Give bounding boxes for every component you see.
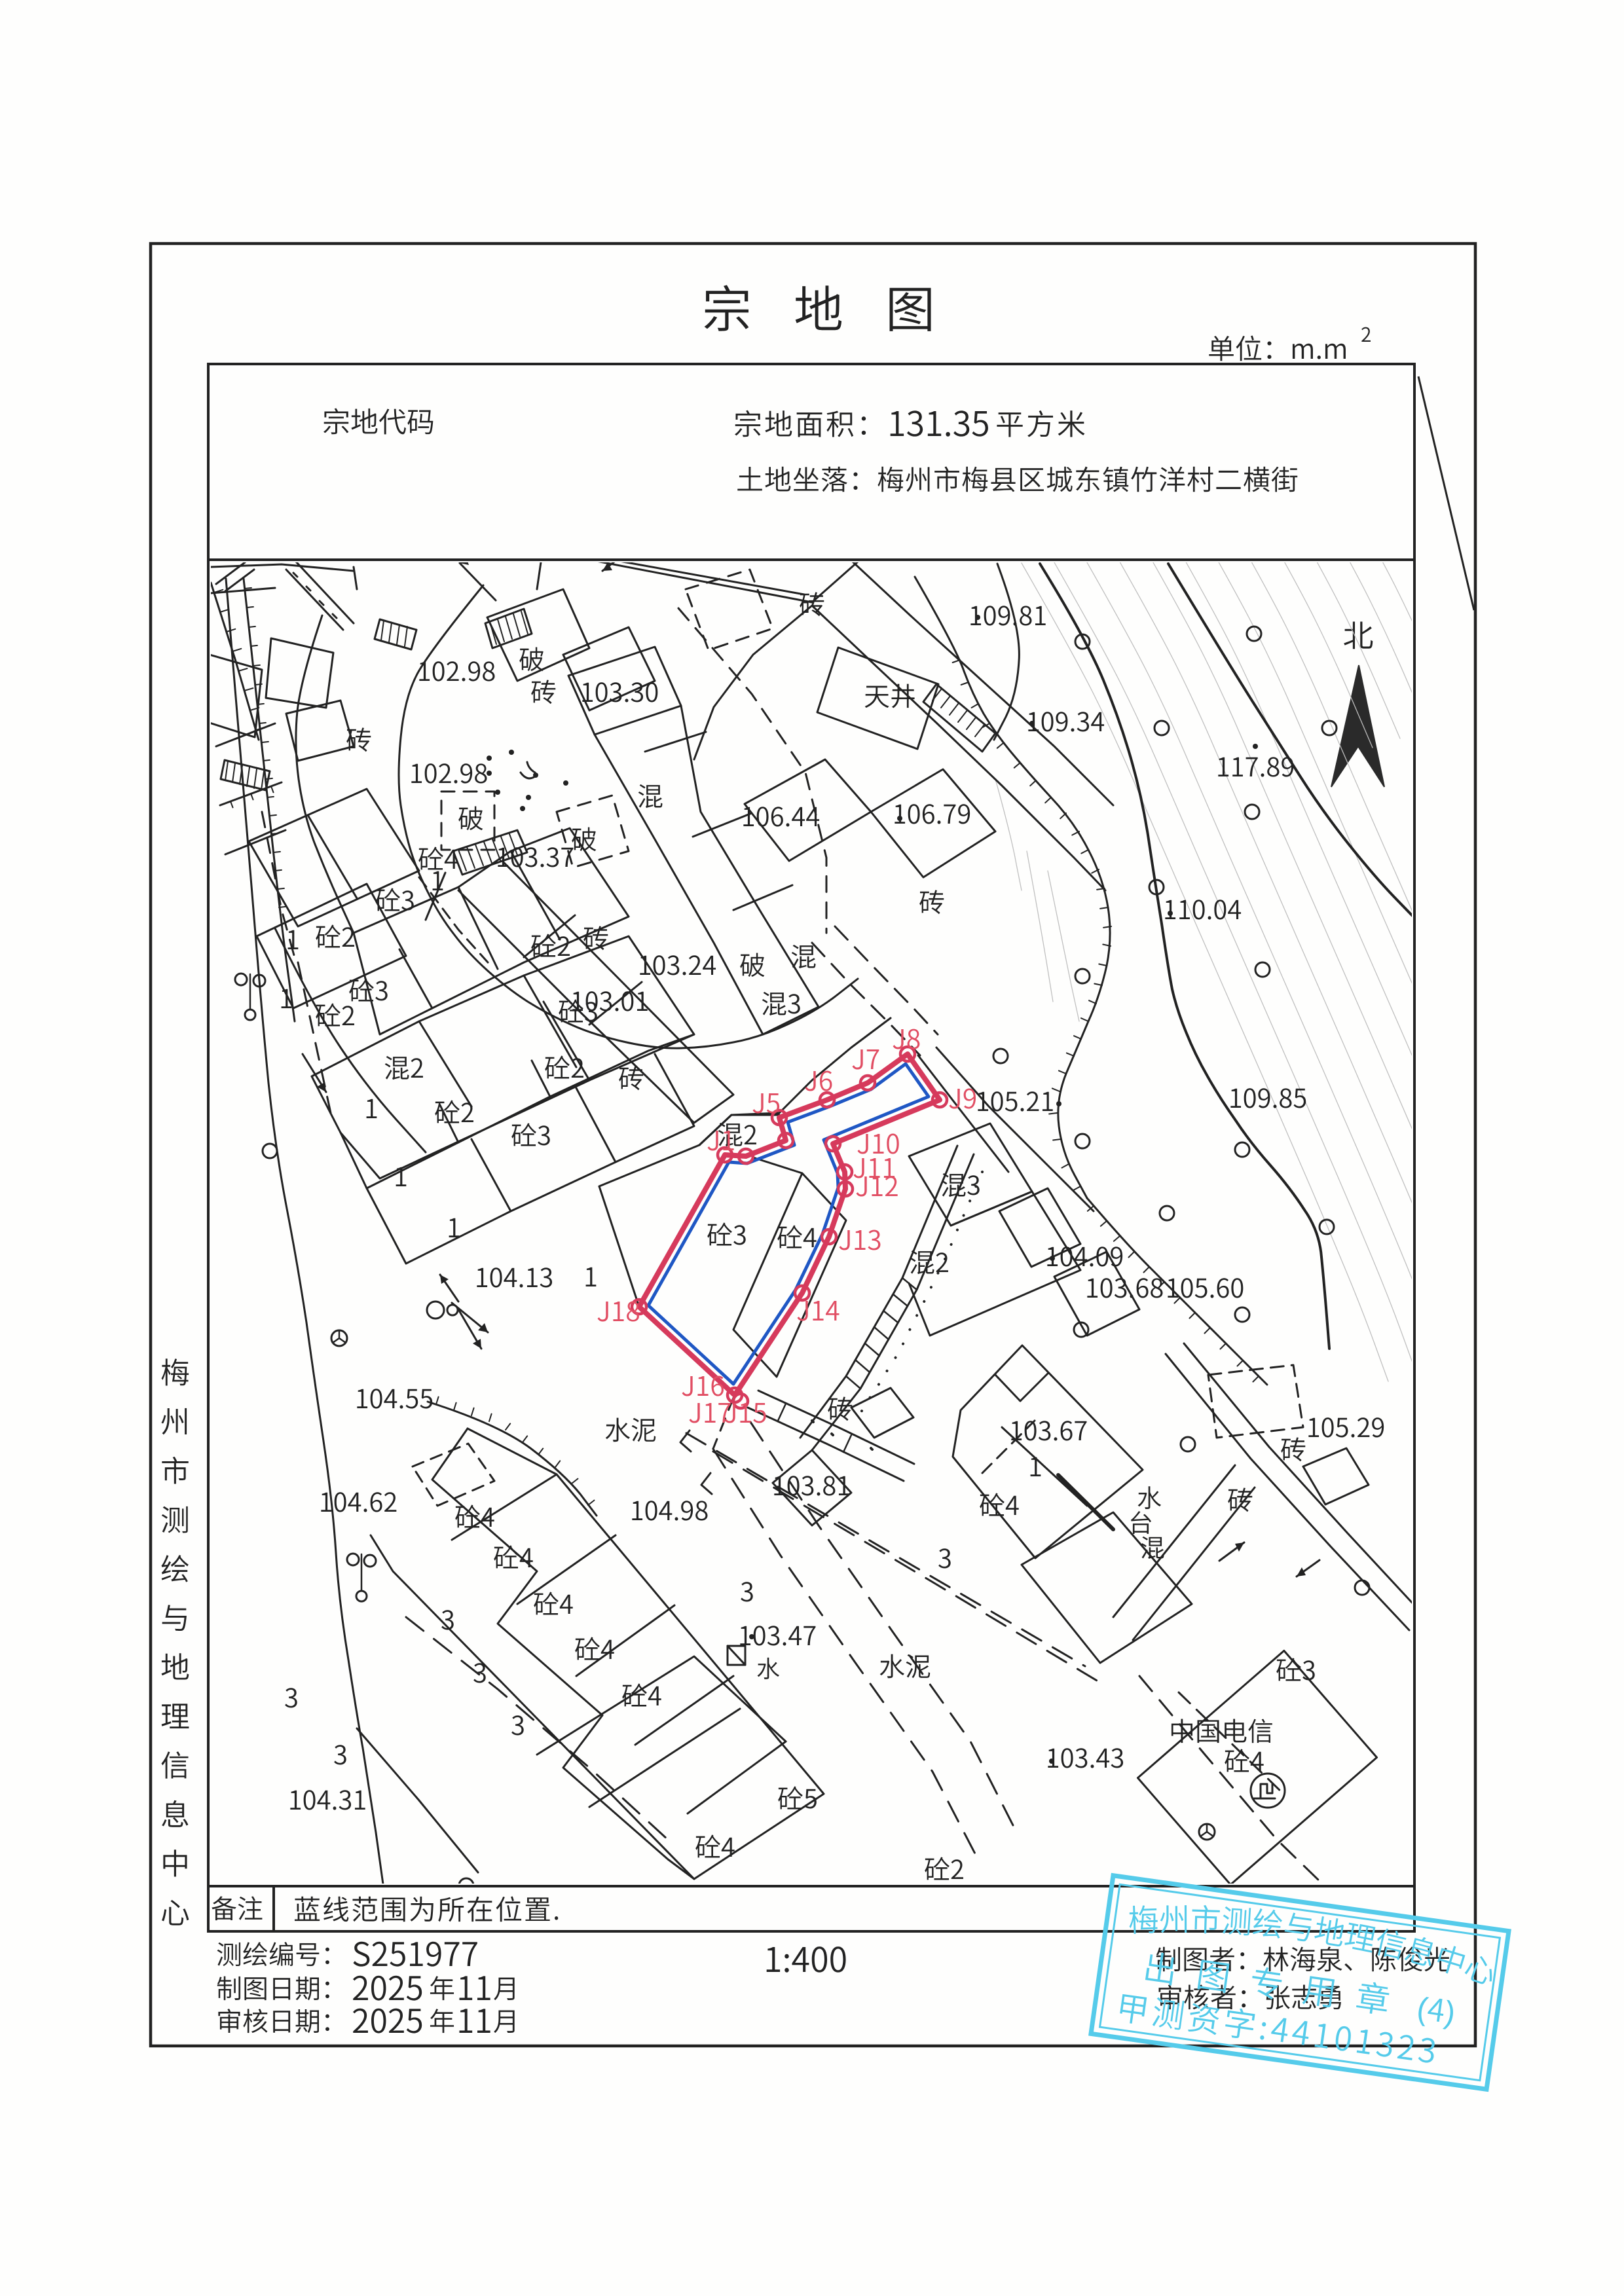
svg-text:砼4: 砼4 [777,1217,817,1255]
svg-text:105.21: 105.21 [976,1081,1055,1119]
svg-text:109.85: 109.85 [1228,1078,1308,1116]
svg-text:砖: 砖 [618,1058,644,1096]
svg-text:1:400: 1:400 [764,1933,847,1982]
svg-text:砖: 砖 [1280,1429,1306,1467]
svg-text:J1: J1 [707,1119,735,1158]
svg-text:103.68: 103.68 [1085,1267,1164,1305]
svg-text:砼3: 砼3 [558,991,599,1029]
svg-text:混2: 混2 [909,1242,950,1280]
svg-text:土地坐落：梅州市梅县区城东镇竹洋村二横街: 土地坐落：梅州市梅县区城东镇竹洋村二横街 [736,458,1299,498]
svg-text:砼2: 砼2 [315,995,356,1033]
svg-text:106.44: 106.44 [741,796,821,834]
svg-text:1: 1 [279,978,293,1016]
svg-text:105.60: 105.60 [1166,1267,1245,1305]
svg-text:1: 1 [1028,1446,1043,1484]
svg-text:102.98: 102.98 [417,651,496,689]
svg-text:砖: 砖 [530,672,557,710]
svg-text:混: 混 [790,936,817,974]
svg-text:102.98: 102.98 [409,753,489,791]
svg-text:砼2: 砼2 [544,1048,585,1085]
svg-text:103.37: 103.37 [496,837,575,875]
svg-text:3: 3 [740,1571,754,1609]
svg-text:砼4: 砼4 [1224,1741,1264,1779]
svg-text:砼4: 砼4 [574,1629,615,1667]
svg-text:J14: J14 [796,1289,840,1328]
svg-text:蓝线范围为所在位置.: 蓝线范围为所在位置. [293,1888,561,1928]
svg-text:103.81: 103.81 [772,1465,851,1503]
svg-text:3: 3 [441,1599,455,1637]
svg-text:砖: 砖 [919,882,945,920]
svg-text:州: 州 [160,1398,190,1441]
svg-text:单位：m.m: 单位：m.m [1208,327,1348,367]
svg-text:2: 2 [1361,319,1371,348]
svg-text:2025: 2025 [352,1995,424,2043]
svg-text:砼2: 砼2 [530,926,571,964]
svg-text:地: 地 [160,1644,190,1686]
svg-text:109.81: 109.81 [969,595,1048,633]
svg-text:北: 北 [1343,611,1374,656]
svg-text:11: 11 [456,1995,492,2043]
svg-text:131.35: 131.35 [887,397,990,446]
svg-text:砖: 砖 [827,1389,853,1427]
svg-text:砼3: 砼3 [1276,1650,1316,1688]
svg-text:混2: 混2 [384,1048,424,1085]
svg-text:1: 1 [286,919,300,957]
svg-text:混3: 混3 [761,983,802,1021]
svg-text:103.47: 103.47 [738,1615,817,1653]
svg-text:110.04: 110.04 [1163,889,1242,927]
svg-text:3: 3 [938,1538,952,1576]
svg-text:绘: 绘 [160,1546,190,1588]
svg-text:3: 3 [284,1677,299,1715]
svg-text:3: 3 [511,1705,525,1743]
svg-text:水: 水 [756,1650,780,1685]
svg-text:混: 混 [1140,1528,1165,1564]
svg-text:平方米: 平方米 [995,401,1088,443]
svg-text:砼4: 砼4 [695,1827,735,1865]
svg-text:105.29: 105.29 [1306,1407,1386,1445]
svg-text:砼2: 砼2 [924,1849,965,1887]
svg-text:J8: J8 [892,1017,921,1057]
svg-text:水泥: 水泥 [879,1646,931,1684]
svg-text:宗地图: 宗地图 [702,270,977,342]
svg-text:J18: J18 [597,1290,640,1329]
svg-text:水泥: 水泥 [604,1410,657,1448]
svg-text:备注: 备注 [211,1888,263,1926]
svg-text:砼3: 砼3 [375,880,415,918]
svg-text:审核日期：: 审核日期： [216,2001,347,2039]
svg-text:1: 1 [447,1207,461,1245]
svg-text:砼5: 砼5 [777,1778,818,1816]
svg-text:砼4: 砼4 [621,1675,662,1713]
svg-text:砼3: 砼3 [511,1115,551,1153]
svg-text:104.13: 104.13 [475,1257,554,1295]
svg-text:104.55: 104.55 [355,1378,434,1416]
svg-text:砼4: 砼4 [979,1485,1020,1523]
svg-text:3: 3 [333,1734,348,1772]
svg-text:砼2: 砼2 [315,917,356,955]
svg-text:砼4: 砼4 [454,1497,495,1535]
svg-text:测: 测 [160,1497,190,1539]
svg-text:砖: 砖 [346,720,372,757]
svg-text:破: 破 [739,945,766,983]
svg-text:117.89: 117.89 [1216,746,1295,784]
svg-text:砼4: 砼4 [493,1537,534,1575]
svg-text:1: 1 [394,1156,408,1194]
svg-text:103.30: 103.30 [580,672,659,710]
svg-text:104.31: 104.31 [288,1779,367,1817]
svg-text:与: 与 [160,1595,190,1637]
svg-text:1: 1 [364,1088,378,1126]
svg-text:J5: J5 [752,1082,781,1121]
svg-text:市: 市 [160,1448,190,1490]
svg-text:理: 理 [160,1693,190,1736]
svg-text:月: 月 [493,2001,519,2039]
svg-text:砼2: 砼2 [434,1092,475,1130]
svg-text:103.24: 103.24 [638,945,717,983]
svg-text:J9: J9 [948,1077,977,1116]
svg-text:砼4: 砼4 [533,1584,574,1622]
svg-text:109.34: 109.34 [1026,701,1105,739]
svg-text:破: 破 [571,819,597,857]
svg-text:J6: J6 [804,1059,833,1099]
svg-text:心: 心 [160,1889,190,1932]
svg-text:3: 3 [473,1652,487,1690]
svg-text:宗地代码: 宗地代码 [322,400,435,441]
svg-text:天井: 天井 [864,676,916,714]
svg-text:砖: 砖 [583,918,609,956]
svg-text:1: 1 [583,1256,598,1294]
svg-text:砼3: 砼3 [707,1214,747,1252]
svg-text:J7: J7 [851,1038,880,1077]
svg-text:104.98: 104.98 [630,1490,709,1528]
svg-text:梅: 梅 [160,1349,190,1392]
svg-text:104.62: 104.62 [319,1482,398,1520]
svg-text:信: 信 [160,1742,190,1785]
svg-text:J15: J15 [724,1391,767,1430]
svg-text:103.43: 103.43 [1046,1738,1125,1776]
svg-text:破: 破 [458,798,484,836]
svg-text:J12: J12 [855,1165,899,1204]
svg-text:年: 年 [429,2001,455,2039]
svg-text:J13: J13 [838,1218,882,1258]
svg-text:混3: 混3 [940,1165,981,1203]
svg-text:混: 混 [637,776,663,814]
svg-text:砖: 砖 [1227,1480,1253,1518]
svg-text:测绘编号：: 测绘编号： [216,1934,347,1972]
svg-text:中: 中 [160,1840,190,1883]
svg-text:106.79: 106.79 [893,793,972,831]
svg-text:宗地面积：: 宗地面积： [733,401,887,443]
svg-text:103.67: 103.67 [1009,1410,1088,1448]
svg-text:砖: 砖 [799,584,825,622]
svg-text:息: 息 [160,1791,190,1834]
